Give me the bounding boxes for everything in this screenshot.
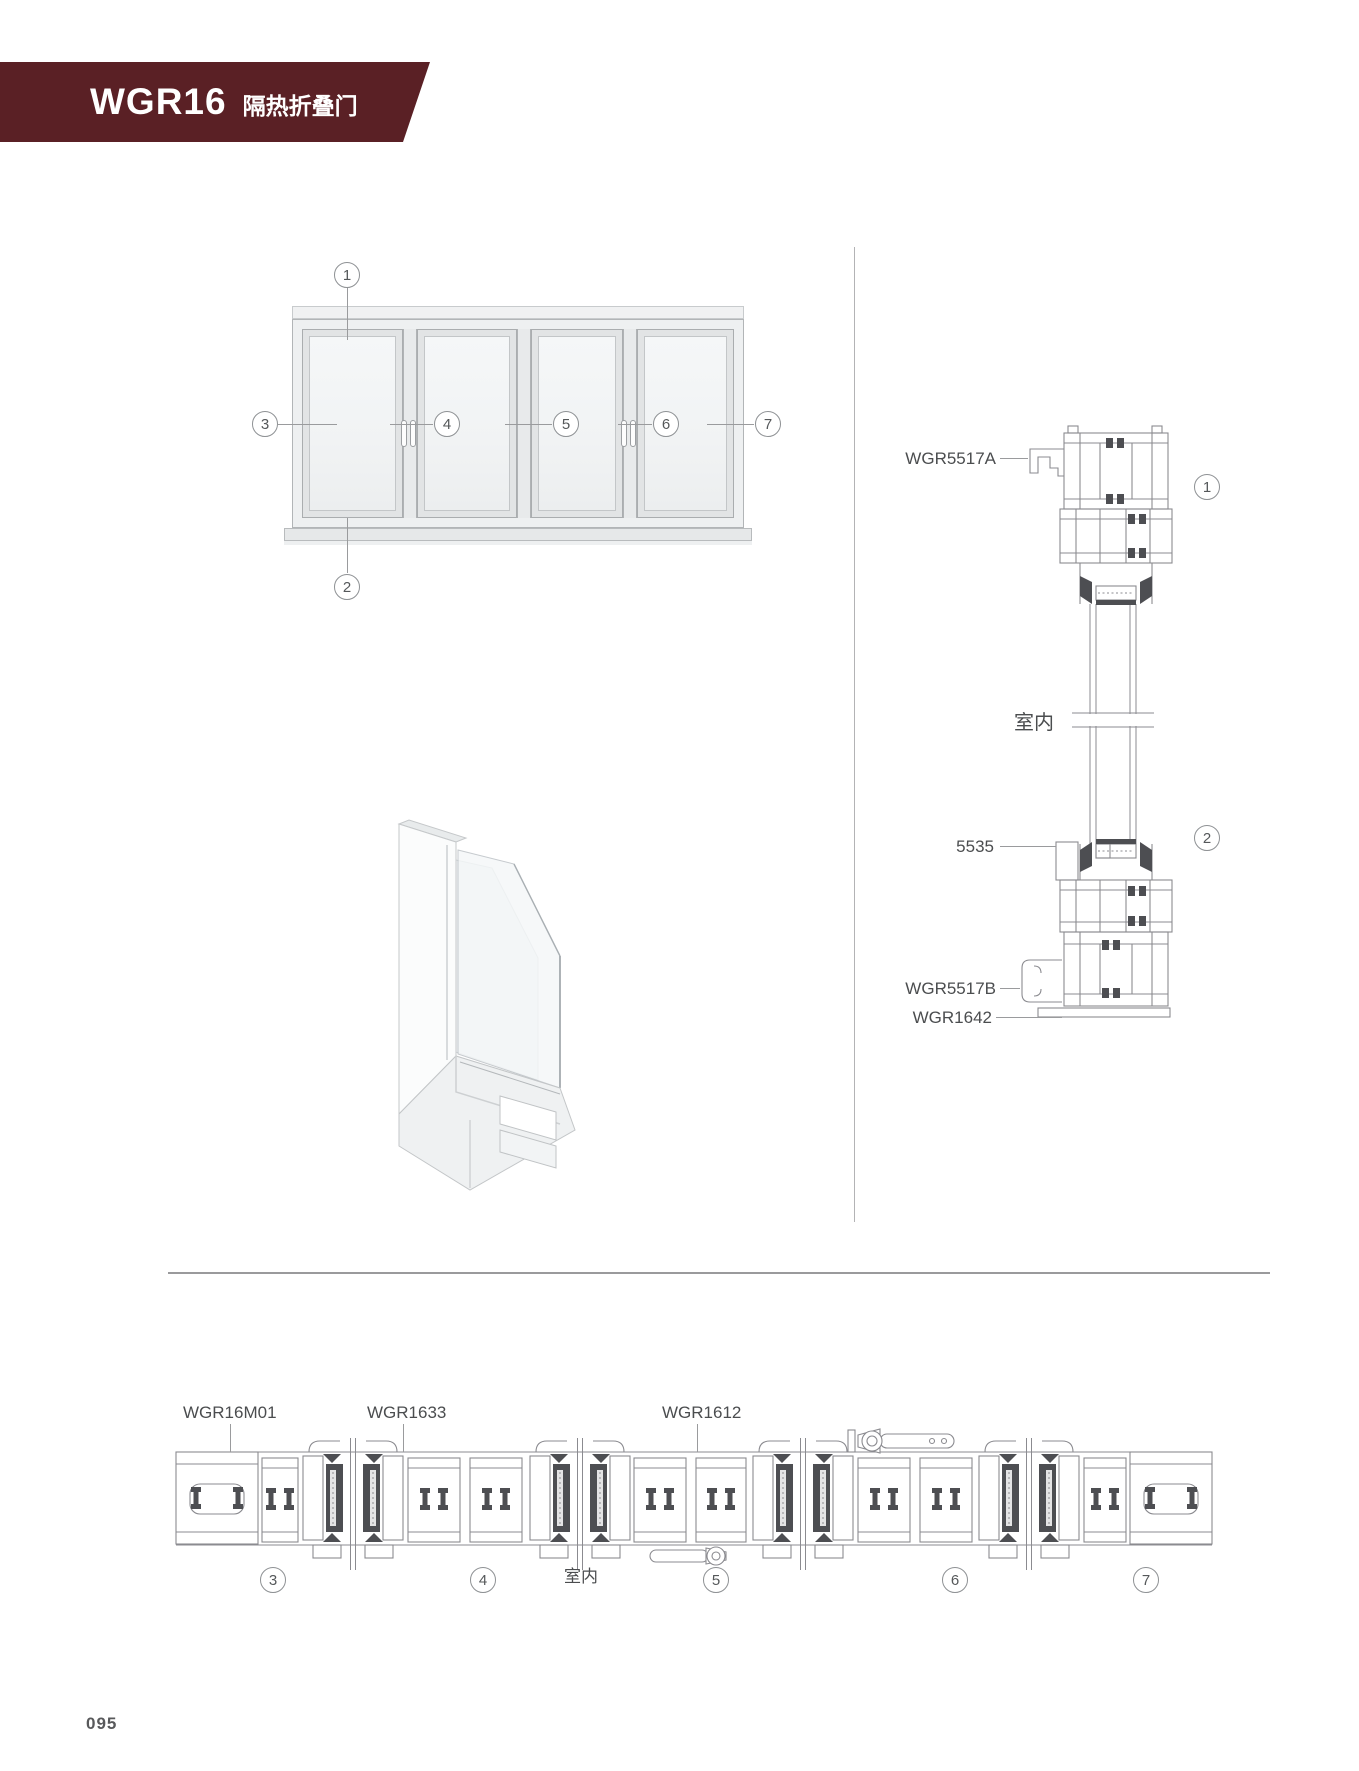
callout-3: 3 <box>252 411 278 437</box>
leader-line <box>390 424 433 425</box>
leader-line <box>403 1424 404 1452</box>
callout-6: 6 <box>653 411 679 437</box>
vertical-section-drawing <box>1000 420 1230 1060</box>
callout-number: 4 <box>443 416 451 433</box>
label-5535: 5535 <box>900 837 994 857</box>
leader-line <box>505 424 552 425</box>
callout-number: 1 <box>1203 479 1211 496</box>
callout-number: 7 <box>764 416 772 433</box>
leader-line <box>1000 988 1020 989</box>
label-wgr1612: WGR1612 <box>662 1403 741 1423</box>
callout-number: 1 <box>343 267 351 284</box>
callout-number: 3 <box>269 1572 277 1589</box>
section-divider-vertical <box>854 247 855 1222</box>
label-indoor-horizontal: 室内 <box>564 1562 598 1587</box>
leader-line <box>1000 846 1056 847</box>
callout-number: 3 <box>261 416 269 433</box>
section-callout-6: 6 <box>942 1567 968 1593</box>
section-callout-7: 7 <box>1133 1567 1159 1593</box>
catalog-page: WGR16 隔热折叠门 1 2 3 4 5 6 7 <box>0 0 1359 1771</box>
model-code: WGR16 <box>90 62 227 142</box>
callout-1: 1 <box>334 262 360 288</box>
label-wgr1642: WGR1642 <box>876 1008 992 1028</box>
section-divider-horizontal <box>168 1272 1270 1274</box>
callout-2: 2 <box>334 574 360 600</box>
door-sill <box>284 528 752 541</box>
section-callout-5: 5 <box>703 1567 729 1593</box>
callout-7: 7 <box>755 411 781 437</box>
callout-5: 5 <box>553 411 579 437</box>
section-callout-1: 1 <box>1194 474 1220 500</box>
leader-line <box>230 1424 231 1452</box>
leader-line <box>278 424 337 425</box>
leader-line <box>707 424 754 425</box>
callout-number: 4 <box>479 1572 487 1589</box>
label-wgr1633: WGR1633 <box>367 1403 446 1423</box>
leader-line <box>618 424 652 425</box>
sill-shadow <box>284 541 752 545</box>
header-banner: WGR16 隔热折叠门 <box>0 62 430 142</box>
section-callout-2: 2 <box>1194 825 1220 851</box>
door-head-track <box>292 306 744 319</box>
callout-number: 5 <box>712 1572 720 1589</box>
callout-4: 4 <box>434 411 460 437</box>
label-wgr5517b: WGR5517B <box>876 979 996 999</box>
leader-line <box>1000 458 1028 459</box>
callout-number: 6 <box>951 1572 959 1589</box>
callout-number: 7 <box>1142 1572 1150 1589</box>
label-indoor-vertical: 室内 <box>1014 706 1054 735</box>
label-wgr16m01: WGR16M01 <box>183 1403 277 1423</box>
leader-line <box>697 1424 698 1452</box>
callout-number: 2 <box>1203 830 1211 847</box>
callout-number: 6 <box>662 416 670 433</box>
leader-line <box>996 1017 1062 1018</box>
label-wgr5517a: WGR5517A <box>880 449 996 469</box>
section-callout-4: 4 <box>470 1567 496 1593</box>
horizontal-section-drawing <box>155 1415 1225 1580</box>
section-callout-3: 3 <box>260 1567 286 1593</box>
page-number: 095 <box>86 1714 117 1734</box>
profile-3d-render <box>380 810 595 1200</box>
callout-number: 2 <box>343 579 351 596</box>
product-title: 隔热折叠门 <box>243 87 358 121</box>
leader-line <box>347 288 348 340</box>
callout-number: 5 <box>562 416 570 433</box>
leader-line <box>347 518 348 573</box>
